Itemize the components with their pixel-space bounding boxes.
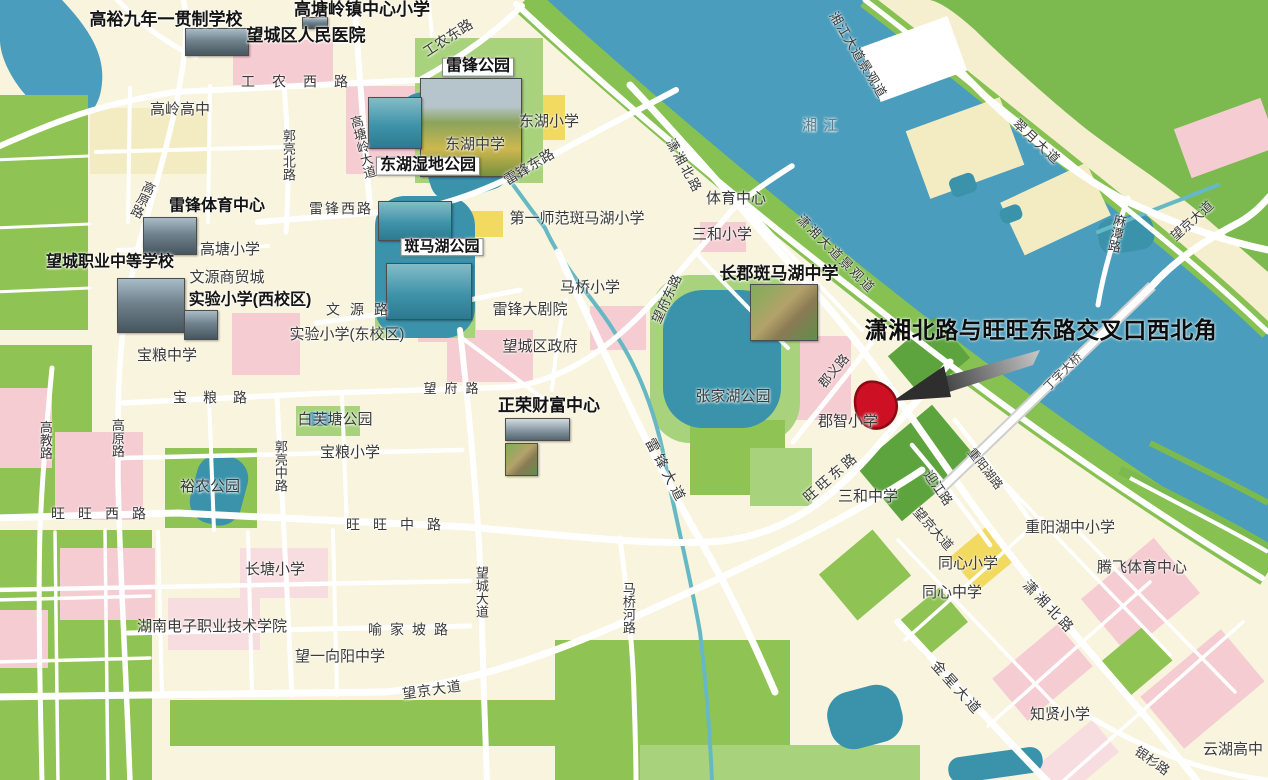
label-guoliang-mid-rd: 郭亮中路 <box>273 440 287 492</box>
label-baoliang-rd: 宝粮路 <box>173 391 263 406</box>
label-banmahu-park: 斑马湖公园 <box>400 238 483 256</box>
label-zhixian-primary: 知贤小学 <box>1030 707 1090 723</box>
label-experimental-primary-east: 实验小学(东校区) <box>290 327 405 343</box>
label-baoliang-primary: 宝粮小学 <box>320 445 380 461</box>
label-junzhi-primary: 郡智小学 <box>818 414 878 430</box>
label-changtang-primary: 长塘小学 <box>245 562 305 578</box>
photo-banmahu-marina-photo <box>378 201 452 241</box>
label-maqiaohe-rd: 马桥河路 <box>621 582 635 634</box>
label-yujiapo-rd: 喻家坡路 <box>368 623 456 638</box>
photo-gaoyu-school-photo <box>185 28 249 56</box>
label-donghu-wetland-park: 东湖湿地公园 <box>376 157 480 176</box>
label-gtl-town-center-primary: 高塘岭镇中心小学 <box>294 1 430 19</box>
label-gaoling-high: 高岭高中 <box>150 102 210 118</box>
label-xiangjiang-river: 湘江 <box>802 118 844 134</box>
label-gaoyuan-rd-s: 高原路 <box>110 419 124 458</box>
label-gaoyu-school: 高裕九年一贯制学校 <box>90 11 243 29</box>
label-yunong-park: 裕农公园 <box>180 479 240 495</box>
label-baifutang-park: 白芙塘公园 <box>297 412 372 428</box>
label-sports-center: 体育中心 <box>706 191 766 207</box>
callout-label: 潇湘北路与旺旺东路交叉口西北角 <box>865 311 1218 345</box>
label-sanhe-primary: 三和小学 <box>692 227 752 243</box>
label-first-normal-banmahu-primary: 第一师范斑马湖小学 <box>509 211 644 227</box>
label-tengfei-sports-center: 腾飞体育中心 <box>1097 560 1187 576</box>
label-wangfu-rd: 望府路 <box>423 382 486 396</box>
photo-changjun-school-photo <box>750 284 818 341</box>
label-wangwang-mid-rd: 旺旺中路 <box>346 518 454 533</box>
photo-wenyuan-photo <box>184 310 218 340</box>
label-leifeng-grand-theatre: 雷锋大剧院 <box>492 302 567 318</box>
label-donghu-primary: 东湖小学 <box>519 114 579 130</box>
label-leifeng-west-rd: 雷锋西路 <box>309 202 373 217</box>
label-donghu-middle: 东湖中学 <box>445 137 505 153</box>
label-wangcheng-vocational-school: 望城职业中等学校 <box>46 255 174 272</box>
label-wangcheng-peoples-hospital: 望城区人民医院 <box>247 27 366 45</box>
photo-banmahu-lake-photo <box>386 263 472 320</box>
photo-leifeng-sports-photo <box>143 217 197 255</box>
photo-zhengrong-aerial-photo <box>505 443 538 476</box>
photo-donghu-wetland-photo <box>368 97 422 149</box>
label-changjun-banmahu-middle: 长郡斑马湖中学 <box>720 265 839 283</box>
label-sanhe-middle: 三和中学 <box>838 489 898 505</box>
photo-vocational-school-photo <box>117 278 185 333</box>
label-wenyuan-trade-city: 文源商贸城 <box>189 270 264 286</box>
label-wangyi-xiangyang-middle: 望一向阳中学 <box>295 649 385 665</box>
label-guoliang-north-rd: 郭亮北路 <box>281 129 295 181</box>
label-gongnong-west-rd: 工农西路 <box>241 75 365 90</box>
label-leifeng-park: 雷锋公园 <box>442 58 514 77</box>
label-maqiao-primary: 马桥小学 <box>560 280 620 296</box>
label-chongyanghu-school: 重阳湖中小学 <box>1025 520 1115 536</box>
label-zhengrong-wealth-center: 正荣财富中心 <box>498 397 600 415</box>
label-baoliang-middle: 宝粮中学 <box>137 348 197 364</box>
label-wangcheng-ave: 望城大道 <box>474 566 488 618</box>
label-hunan-electronic-college: 湖南电子职业技术学院 <box>137 619 287 635</box>
photo-zhengrong-pano-photo <box>505 418 570 441</box>
label-wangwang-west-rd: 旺旺西路 <box>51 507 159 522</box>
label-zhangjiahu-park: 张家湖公园 <box>695 389 770 405</box>
label-experimental-primary-west: 实验小学(西校区) <box>189 293 312 310</box>
label-tongxin-primary: 同心小学 <box>938 556 998 572</box>
label-wangcheng-district-govt: 望城区政府 <box>502 339 577 355</box>
planning-map[interactable]: 高裕九年一贯制学校高塘岭镇中心小学望城区人民医院雷锋公园东湖湿地公园雷锋体育中心… <box>0 0 1268 780</box>
label-yunhu-high: 云湖高中 <box>1203 742 1263 758</box>
label-tongxin-middle: 同心中学 <box>922 585 982 601</box>
label-leifeng-sports-center: 雷锋体育中心 <box>169 199 265 216</box>
label-gaotang-primary: 高塘小学 <box>200 242 260 258</box>
label-wenyuan-rd: 文源路 <box>326 303 398 318</box>
label-gaojiao-rd: 高教路 <box>38 421 52 460</box>
